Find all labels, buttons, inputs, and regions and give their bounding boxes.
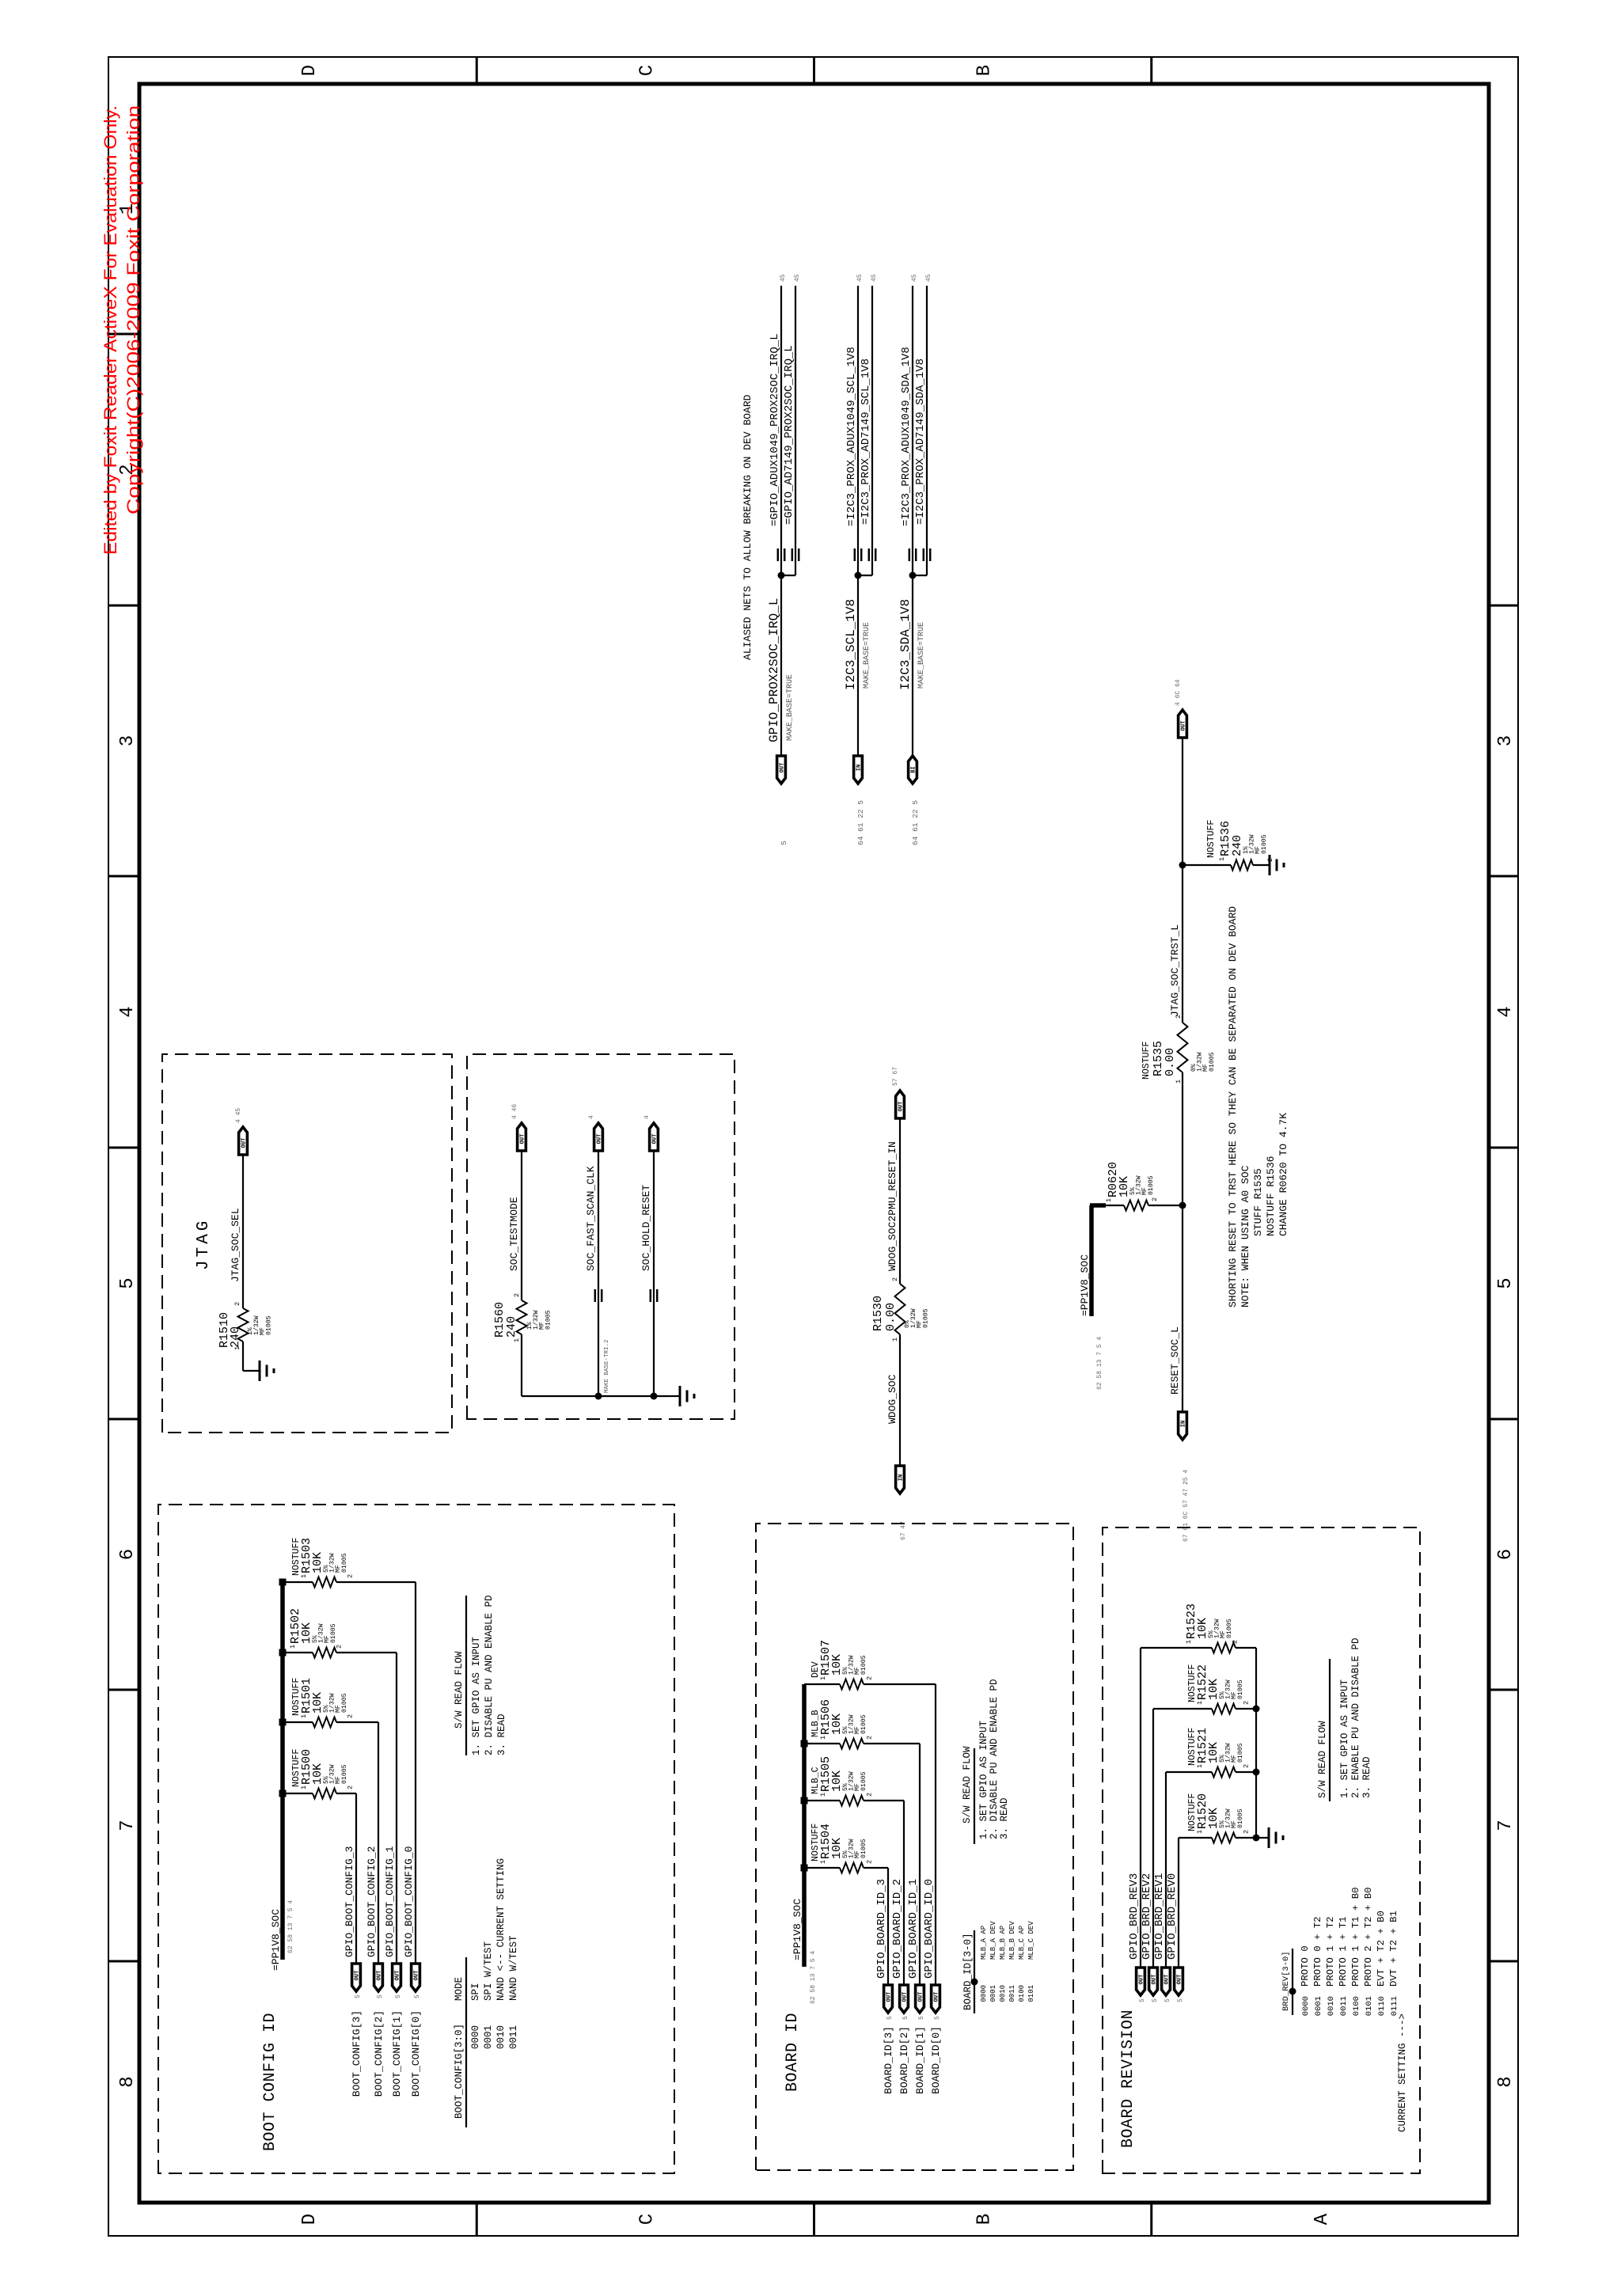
svg-text:1: 1: [300, 1786, 308, 1789]
svg-text:GPIO_PROX2SOC_IRQ_L: GPIO_PROX2SOC_IRQ_L: [767, 598, 781, 742]
svg-text:67 61 6C 57 47 25 4: 67 61 6C 57 47 25 4: [1183, 1470, 1190, 1542]
svg-text:2: 2: [865, 1736, 873, 1740]
svg-text:0100: 0100: [1018, 1985, 1026, 2002]
svg-text:01005: 01005: [860, 1655, 867, 1675]
svg-text:OUT: OUT: [1181, 721, 1187, 731]
svg-text:IN: IN: [856, 765, 863, 771]
svg-text:7: 7: [1495, 1820, 1517, 1831]
svg-text:2: 2: [346, 1786, 354, 1789]
svg-text:BOARD_ID[1]: BOARD_ID[1]: [914, 2026, 926, 2094]
svg-text:01005: 01005: [1148, 1175, 1155, 1195]
svg-text:GPIO_BOOT_CONFIG_0: GPIO_BOOT_CONFIG_0: [403, 1846, 415, 1957]
svg-text:IN: IN: [1181, 1421, 1187, 1427]
svg-text:BOARD_ID[3]: BOARD_ID[3]: [883, 2026, 894, 2094]
svg-text:BOOT_CONFIG[3:0]: BOOT_CONFIG[3:0]: [454, 2024, 465, 2119]
svg-text:BOOT CONFIG ID: BOOT CONFIG ID: [261, 2013, 279, 2151]
svg-text:OUT: OUT: [886, 1992, 893, 2002]
svg-text:OUT: OUT: [1152, 1975, 1158, 1985]
svg-text:1: 1: [300, 1714, 308, 1718]
svg-text:0001: 0001: [1314, 1996, 1323, 2016]
svg-text:BOARD_ID[0]: BOARD_ID[0]: [930, 2026, 942, 2094]
svg-text:1: 1: [1196, 1701, 1204, 1705]
svg-text:8: 8: [1495, 2076, 1517, 2087]
svg-text:1: 1: [819, 1736, 827, 1740]
svg-text:B: B: [974, 2214, 996, 2225]
svg-text:MLB_C DEV: MLB_C DEV: [1027, 1921, 1035, 1960]
svg-text:A: A: [1312, 2213, 1333, 2225]
svg-text:1: 1: [300, 1574, 308, 1578]
svg-text:OUT: OUT: [1164, 1975, 1171, 1985]
svg-text:Copyright(C)2006-2009 Foxit Co: Copyright(C)2006-2009 Foxit Corporation: [123, 105, 143, 514]
svg-text:5: 5: [1164, 1998, 1171, 2002]
svg-text:BOOT_CONFIG[2]: BOOT_CONFIG[2]: [373, 2010, 385, 2097]
svg-text:PROTO 1 + T1 + B0: PROTO 1 + T1 + B0: [1350, 1888, 1361, 1987]
svg-text:1: 1: [1105, 1198, 1113, 1202]
svg-text:4 46: 4 46: [511, 1104, 518, 1119]
svg-text:0000: 0000: [470, 2025, 481, 2049]
svg-text:2: 2: [865, 1676, 873, 1680]
svg-text:B: B: [974, 65, 996, 76]
svg-text:MLB_B DEV: MLB_B DEV: [1008, 1921, 1016, 1960]
svg-text:0100: 0100: [1352, 1996, 1361, 2016]
svg-text:ALIASED NETS TO ALLOW BREAKING: ALIASED NETS TO ALLOW BREAKING ON DEV BO…: [742, 394, 754, 660]
svg-text:S/W READ FLOW: S/W READ FLOW: [962, 1746, 973, 1824]
svg-text:2: 2: [865, 1793, 873, 1797]
svg-text:OUT: OUT: [377, 1971, 383, 1981]
svg-text:MAKE_BASE=TRUE: MAKE_BASE=TRUE: [863, 622, 871, 689]
svg-text:GPIO_BRD_REV3: GPIO_BRD_REV3: [1128, 1873, 1141, 1960]
svg-text:1. SET GPIO AS INPUT: 1. SET GPIO AS INPUT: [471, 1636, 482, 1755]
svg-text:IN: IN: [898, 1474, 905, 1481]
svg-text:BOARD_ID[2]: BOARD_ID[2]: [898, 2026, 910, 2094]
svg-text:4 45: 4 45: [235, 1108, 242, 1123]
svg-text:3. READ: 3. READ: [496, 1713, 507, 1755]
svg-text:S/W READ FLOW: S/W READ FLOW: [1317, 1721, 1328, 1798]
svg-text:8: 8: [117, 2076, 139, 2087]
svg-text:D: D: [299, 65, 321, 76]
svg-text:45: 45: [780, 274, 787, 282]
svg-text:6: 6: [117, 1549, 139, 1560]
svg-text:2: 2: [1266, 858, 1274, 862]
svg-text:OUT: OUT: [934, 1992, 940, 2002]
svg-text:JTAG_SOC_TRST_L: JTAG_SOC_TRST_L: [1169, 924, 1181, 1017]
svg-text:SOC_HOLD_RESET: SOC_HOLD_RESET: [640, 1185, 652, 1271]
svg-text:2: 2: [1242, 1701, 1250, 1705]
svg-text:01005: 01005: [330, 1623, 337, 1643]
svg-text:SOC_FAST_SCAN_CLK: SOC_FAST_SCAN_CLK: [585, 1166, 597, 1271]
svg-text:0000: 0000: [980, 1985, 988, 2002]
svg-text:NOSTUFF: NOSTUFF: [1141, 1042, 1152, 1080]
svg-text:GPIO_BOARD_ID_0: GPIO_BOARD_ID_0: [923, 1879, 936, 1979]
svg-text:3: 3: [1495, 735, 1517, 746]
svg-text:1: 1: [819, 1793, 827, 1797]
svg-text:Edited by Foxit Reader ActiveX: Edited by Foxit Reader ActiveX For Evalu…: [101, 105, 120, 555]
svg-text:=I2C3_PROX_AD7149_SCL_1V8: =I2C3_PROX_AD7149_SCL_1V8: [860, 359, 872, 525]
svg-text:0000: 0000: [1301, 1996, 1311, 2016]
svg-text:64 61 22 5: 64 61 22 5: [856, 800, 865, 845]
svg-text:57 67: 57 67: [892, 1067, 899, 1086]
svg-text:62 58 13 7 5 4: 62 58 13 7 5 4: [1096, 1337, 1103, 1390]
svg-text:SHORTING RESET TO TRST HERE SO: SHORTING RESET TO TRST HERE SO THEY CAN …: [1227, 906, 1239, 1307]
svg-text:0011: 0011: [1008, 1985, 1016, 2002]
svg-text:OUT: OUT: [597, 1134, 603, 1144]
svg-text:3: 3: [117, 735, 139, 746]
svg-text:NAND W/TEST: NAND W/TEST: [508, 1935, 519, 2001]
svg-text:OUT: OUT: [652, 1134, 659, 1144]
svg-text:BRD_REV[3-0]: BRD_REV[3-0]: [1281, 1951, 1291, 2011]
svg-text:5: 5: [902, 2016, 909, 2020]
svg-text:BOOT_CONFIG[1]: BOOT_CONFIG[1]: [391, 2010, 403, 2097]
svg-text:=GPIO_AD7149_PROX2SOC_IRQ_L: =GPIO_AD7149_PROX2SOC_IRQ_L: [783, 345, 795, 525]
svg-text:2: 2: [865, 1860, 873, 1864]
svg-text:1: 1: [289, 1645, 297, 1649]
svg-text:OUT: OUT: [414, 1971, 420, 1981]
svg-text:JTAG_SOC_SEL: JTAG_SOC_SEL: [230, 1208, 241, 1282]
svg-text:MODE: MODE: [454, 1977, 465, 2001]
svg-text:62 58 13 7 5 4: 62 58 13 7 5 4: [810, 1951, 817, 2004]
svg-text:0101: 0101: [1027, 1985, 1035, 2002]
svg-text:01005: 01005: [265, 1315, 272, 1335]
svg-text:SPI: SPI: [470, 1983, 481, 2001]
svg-text:2: 2: [346, 1714, 354, 1718]
svg-text:2: 2: [335, 1645, 343, 1649]
svg-text:5: 5: [780, 841, 788, 845]
svg-text:01005: 01005: [1209, 1052, 1216, 1072]
svg-text:01005: 01005: [1237, 1679, 1244, 1699]
svg-text:2: 2: [346, 1574, 354, 1578]
svg-text:1: 1: [1218, 857, 1226, 861]
svg-text:MLB_A DEV: MLB_A DEV: [989, 1921, 997, 1960]
svg-text:BOARD_ID[3-0]: BOARD_ID[3-0]: [962, 1933, 974, 2010]
svg-text:=I2C3_PROX_AD7149_SDA_1V8: =I2C3_PROX_AD7149_SDA_1V8: [914, 359, 927, 525]
svg-text:PROTO 2 + T2 + B0: PROTO 2 + T2 + B0: [1363, 1888, 1374, 1987]
svg-text:OUT: OUT: [241, 1138, 248, 1148]
svg-text:S/W READ FLOW: S/W READ FLOW: [454, 1651, 465, 1729]
svg-text:5: 5: [934, 2016, 941, 2020]
svg-text:1: 1: [1175, 1080, 1183, 1083]
svg-text:5: 5: [886, 2016, 894, 2020]
svg-text:5: 5: [117, 1277, 139, 1288]
svg-text:2. ENABLE PU AND DISABLE PD: 2. ENABLE PU AND DISABLE PD: [1350, 1638, 1361, 1798]
svg-text:5: 5: [414, 1994, 421, 1998]
svg-text:0001: 0001: [483, 2025, 494, 2049]
svg-text:BOOT_CONFIG[3]: BOOT_CONFIG[3]: [351, 2010, 363, 2097]
svg-text:2: 2: [1231, 1640, 1239, 1644]
svg-text:1. SET GPIO AS INPUT: 1. SET GPIO AS INPUT: [1339, 1679, 1350, 1798]
svg-text:240: 240: [229, 1326, 242, 1348]
svg-text:PROTO 1 + T2: PROTO 1 + T2: [1325, 1916, 1336, 1987]
svg-text:I2C3_SDA_1V8: I2C3_SDA_1V8: [898, 599, 913, 690]
svg-text:0.00: 0.00: [1164, 1048, 1177, 1076]
svg-text:1: 1: [1196, 1830, 1204, 1834]
svg-text:0011: 0011: [1339, 1996, 1349, 2016]
svg-text:=PP1V8_SOC: =PP1V8_SOC: [270, 1909, 282, 1971]
svg-text:WDOG_SOC2PMU_RESET_IN: WDOG_SOC2PMU_RESET_IN: [886, 1141, 898, 1271]
svg-text:MAKE_BASE=TRUE: MAKE_BASE=TRUE: [917, 622, 926, 689]
svg-text:01005: 01005: [860, 1714, 867, 1734]
svg-text:GPIO_BRD_REV2: GPIO_BRD_REV2: [1141, 1873, 1153, 1960]
svg-text:0010: 0010: [1327, 1996, 1336, 2016]
svg-text:GPIO_BOARD_ID_2: GPIO_BOARD_ID_2: [891, 1879, 904, 1979]
svg-text:C: C: [636, 65, 658, 76]
svg-text:45: 45: [856, 274, 864, 282]
svg-text:OUT: OUT: [520, 1134, 526, 1144]
svg-text:GPIO_BOOT_CONFIG_3: GPIO_BOOT_CONFIG_3: [344, 1846, 355, 1957]
svg-text:3. READ: 3. READ: [1361, 1756, 1372, 1798]
svg-text:4: 4: [117, 1006, 139, 1017]
svg-text:0.00: 0.00: [884, 1303, 898, 1331]
svg-text:2: 2: [891, 1277, 899, 1281]
svg-text:GPIO_BOARD_ID_3: GPIO_BOARD_ID_3: [875, 1879, 888, 1979]
svg-text:0011: 0011: [508, 2025, 519, 2049]
svg-text:2: 2: [233, 1302, 241, 1306]
svg-text:1: 1: [891, 1338, 899, 1342]
svg-text:=PP1V8_SOC: =PP1V8_SOC: [1079, 1254, 1091, 1316]
svg-text:2: 2: [1151, 1197, 1159, 1201]
svg-text:45: 45: [871, 274, 878, 282]
svg-text:STUFF R1535: STUFF R1535: [1252, 1168, 1264, 1236]
svg-text:PROTO 0 + T2: PROTO 0 + T2: [1312, 1916, 1323, 1987]
svg-text:1: 1: [819, 1676, 827, 1680]
svg-text:01005: 01005: [1237, 1808, 1244, 1828]
svg-text:2. DISABLE PU AND ENABLE PD: 2. DISABLE PU AND ENABLE PD: [989, 1679, 1000, 1839]
svg-text:=I2C3_PROX_ADUX1049_SCL_1V8: =I2C3_PROX_ADUX1049_SCL_1V8: [845, 347, 858, 526]
svg-text:5: 5: [395, 1994, 402, 1998]
svg-text:1: 1: [513, 1338, 521, 1342]
svg-text:4: 4: [588, 1115, 595, 1119]
svg-text:01005: 01005: [922, 1308, 929, 1328]
svg-text:01005: 01005: [860, 1839, 867, 1858]
svg-text:MLB_A AP: MLB_A AP: [980, 1926, 988, 1960]
svg-text:5: 5: [1495, 1277, 1517, 1288]
svg-text:GPIO_BOOT_CONFIG_1: GPIO_BOOT_CONFIG_1: [384, 1846, 396, 1957]
svg-text:1: 1: [819, 1860, 827, 1864]
svg-text:01005: 01005: [545, 1310, 552, 1330]
svg-text:4 6C 64: 4 6C 64: [1175, 679, 1182, 706]
svg-text:BOARD REVISION: BOARD REVISION: [1119, 2009, 1137, 2148]
svg-text:BI: BI: [911, 766, 917, 772]
svg-text:C: C: [636, 2214, 658, 2225]
svg-text:OUT: OUT: [395, 1971, 401, 1981]
svg-text:1: 1: [1185, 1640, 1193, 1644]
svg-text:1: 1: [233, 1346, 241, 1350]
svg-text:0010: 0010: [999, 1985, 1007, 2002]
svg-text:45: 45: [925, 274, 932, 282]
svg-text:5: 5: [1177, 1998, 1184, 2002]
svg-text:45: 45: [794, 274, 801, 282]
svg-text:JTAG: JTAG: [195, 1218, 213, 1270]
svg-text:OUT: OUT: [780, 763, 786, 773]
svg-text:CURRENT SETTING --->: CURRENT SETTING --->: [1397, 2013, 1408, 2132]
svg-text:BOARD ID: BOARD ID: [784, 2013, 802, 2092]
svg-text:MAKE_BASE=TRUE: MAKE_BASE=TRUE: [786, 674, 795, 741]
svg-text:4: 4: [643, 1115, 651, 1119]
svg-text:01005: 01005: [1237, 1743, 1244, 1763]
svg-text:2. DISABLE PU AND ENABLE PD: 2. DISABLE PU AND ENABLE PD: [484, 1595, 495, 1755]
svg-text:0111: 0111: [1390, 1996, 1399, 2016]
svg-text:MLB_B AP: MLB_B AP: [999, 1926, 1007, 1960]
svg-text:01005: 01005: [1226, 1619, 1233, 1638]
svg-text:NAND <-- CURRENT SETTING: NAND <-- CURRENT SETTING: [495, 1858, 507, 2001]
svg-text:NOTE: WHEN USING A0 SOC: NOTE: WHEN USING A0 SOC: [1239, 1165, 1251, 1307]
svg-text:GPIO_BOOT_CONFIG_2: GPIO_BOOT_CONFIG_2: [366, 1846, 378, 1957]
svg-text:0001: 0001: [989, 1985, 997, 2002]
svg-text:WDOG_SOC: WDOG_SOC: [886, 1374, 898, 1424]
svg-text:CHANGE R0620 TO 4.7K: CHANGE R0620 TO 4.7K: [1277, 1113, 1289, 1236]
svg-text:D: D: [299, 2214, 321, 2225]
svg-text:7: 7: [117, 1820, 139, 1831]
svg-text:3. READ: 3. READ: [999, 1797, 1010, 1839]
svg-text:OUT: OUT: [355, 1971, 361, 1981]
svg-text:I2C3_SCL_1V8: I2C3_SCL_1V8: [844, 599, 858, 690]
svg-text:OUT: OUT: [1139, 1975, 1145, 1985]
svg-text:0110: 0110: [1377, 1996, 1387, 2016]
svg-text:BOOT_CONFIG[0]: BOOT_CONFIG[0]: [410, 2010, 422, 2097]
svg-text:2: 2: [1242, 1764, 1250, 1768]
svg-text:2: 2: [1242, 1830, 1250, 1834]
svg-text:SPI W/TEST: SPI W/TEST: [483, 1941, 494, 2001]
svg-text:64 61 22 5: 64 61 22 5: [911, 800, 920, 845]
svg-text:2: 2: [513, 1293, 521, 1297]
svg-text:5: 5: [1139, 1998, 1146, 2002]
svg-text:GPIO_BRD_REV1: GPIO_BRD_REV1: [1153, 1873, 1166, 1960]
svg-text:5: 5: [1152, 1998, 1159, 2002]
svg-text:PROTO 1 + T1: PROTO 1 + T1: [1338, 1916, 1349, 1987]
svg-text:=I2C3_PROX_ADUX1049_SDA_1V8: =I2C3_PROX_ADUX1049_SDA_1V8: [900, 347, 913, 526]
svg-text:240: 240: [505, 1316, 518, 1338]
svg-text:0101: 0101: [1365, 1996, 1374, 2016]
svg-text:62 58 13 7 5 4: 62 58 13 7 5 4: [287, 1900, 294, 1953]
svg-text:GPIO_BOARD_ID_1: GPIO_BOARD_ID_1: [907, 1879, 920, 1979]
svg-text:5: 5: [918, 2016, 925, 2020]
svg-text:EVT + T2 + B0: EVT + T2 + B0: [1376, 1911, 1387, 1987]
svg-text:5: 5: [355, 1994, 362, 1998]
svg-text:PROTO 0: PROTO 0: [1300, 1945, 1311, 1987]
svg-text:NOSTUFF: NOSTUFF: [1206, 820, 1217, 858]
svg-text:01005: 01005: [1261, 834, 1268, 854]
svg-text:=GPIO_ADUX1049_PROX2SOC_IRQ_L: =GPIO_ADUX1049_PROX2SOC_IRQ_L: [769, 333, 781, 526]
svg-text:5: 5: [377, 1994, 384, 1998]
svg-text:=PP1V8_SOC: =PP1V8_SOC: [792, 1899, 803, 1960]
svg-text:01005: 01005: [341, 1553, 348, 1573]
svg-text:MLB_C AP: MLB_C AP: [1018, 1926, 1026, 1960]
svg-text:6: 6: [1495, 1549, 1517, 1560]
svg-text:OUT: OUT: [918, 1992, 924, 2002]
svg-text:R1530: R1530: [871, 1296, 885, 1331]
svg-text:4: 4: [1495, 1006, 1517, 1017]
svg-text:01005: 01005: [341, 1764, 348, 1784]
svg-text:OUT: OUT: [902, 1992, 909, 2002]
svg-text:0010: 0010: [495, 2025, 507, 2049]
svg-text:RESET_SOC_L: RESET_SOC_L: [1169, 1326, 1181, 1395]
svg-text:DVT + T2 + B1: DVT + T2 + B1: [1388, 1911, 1399, 1987]
svg-text:1: 1: [1196, 1764, 1204, 1768]
svg-text:1. SET GPIO AS INPUT: 1. SET GPIO AS INPUT: [978, 1720, 989, 1839]
svg-text:OUT: OUT: [1177, 1975, 1183, 1985]
svg-text:01005: 01005: [860, 1771, 867, 1791]
svg-text:MAKE BASE-TRI.2: MAKE BASE-TRI.2: [604, 1339, 610, 1393]
svg-text:SOC_TESTMODE: SOC_TESTMODE: [508, 1197, 520, 1271]
svg-text:NOSTUFF R1536: NOSTUFF R1536: [1265, 1156, 1277, 1236]
svg-text:GPIO_BRD_REV0: GPIO_BRD_REV0: [1166, 1873, 1179, 1960]
svg-text:OUT: OUT: [898, 1102, 905, 1112]
svg-text:01005: 01005: [341, 1693, 348, 1713]
svg-text:45: 45: [911, 274, 918, 282]
